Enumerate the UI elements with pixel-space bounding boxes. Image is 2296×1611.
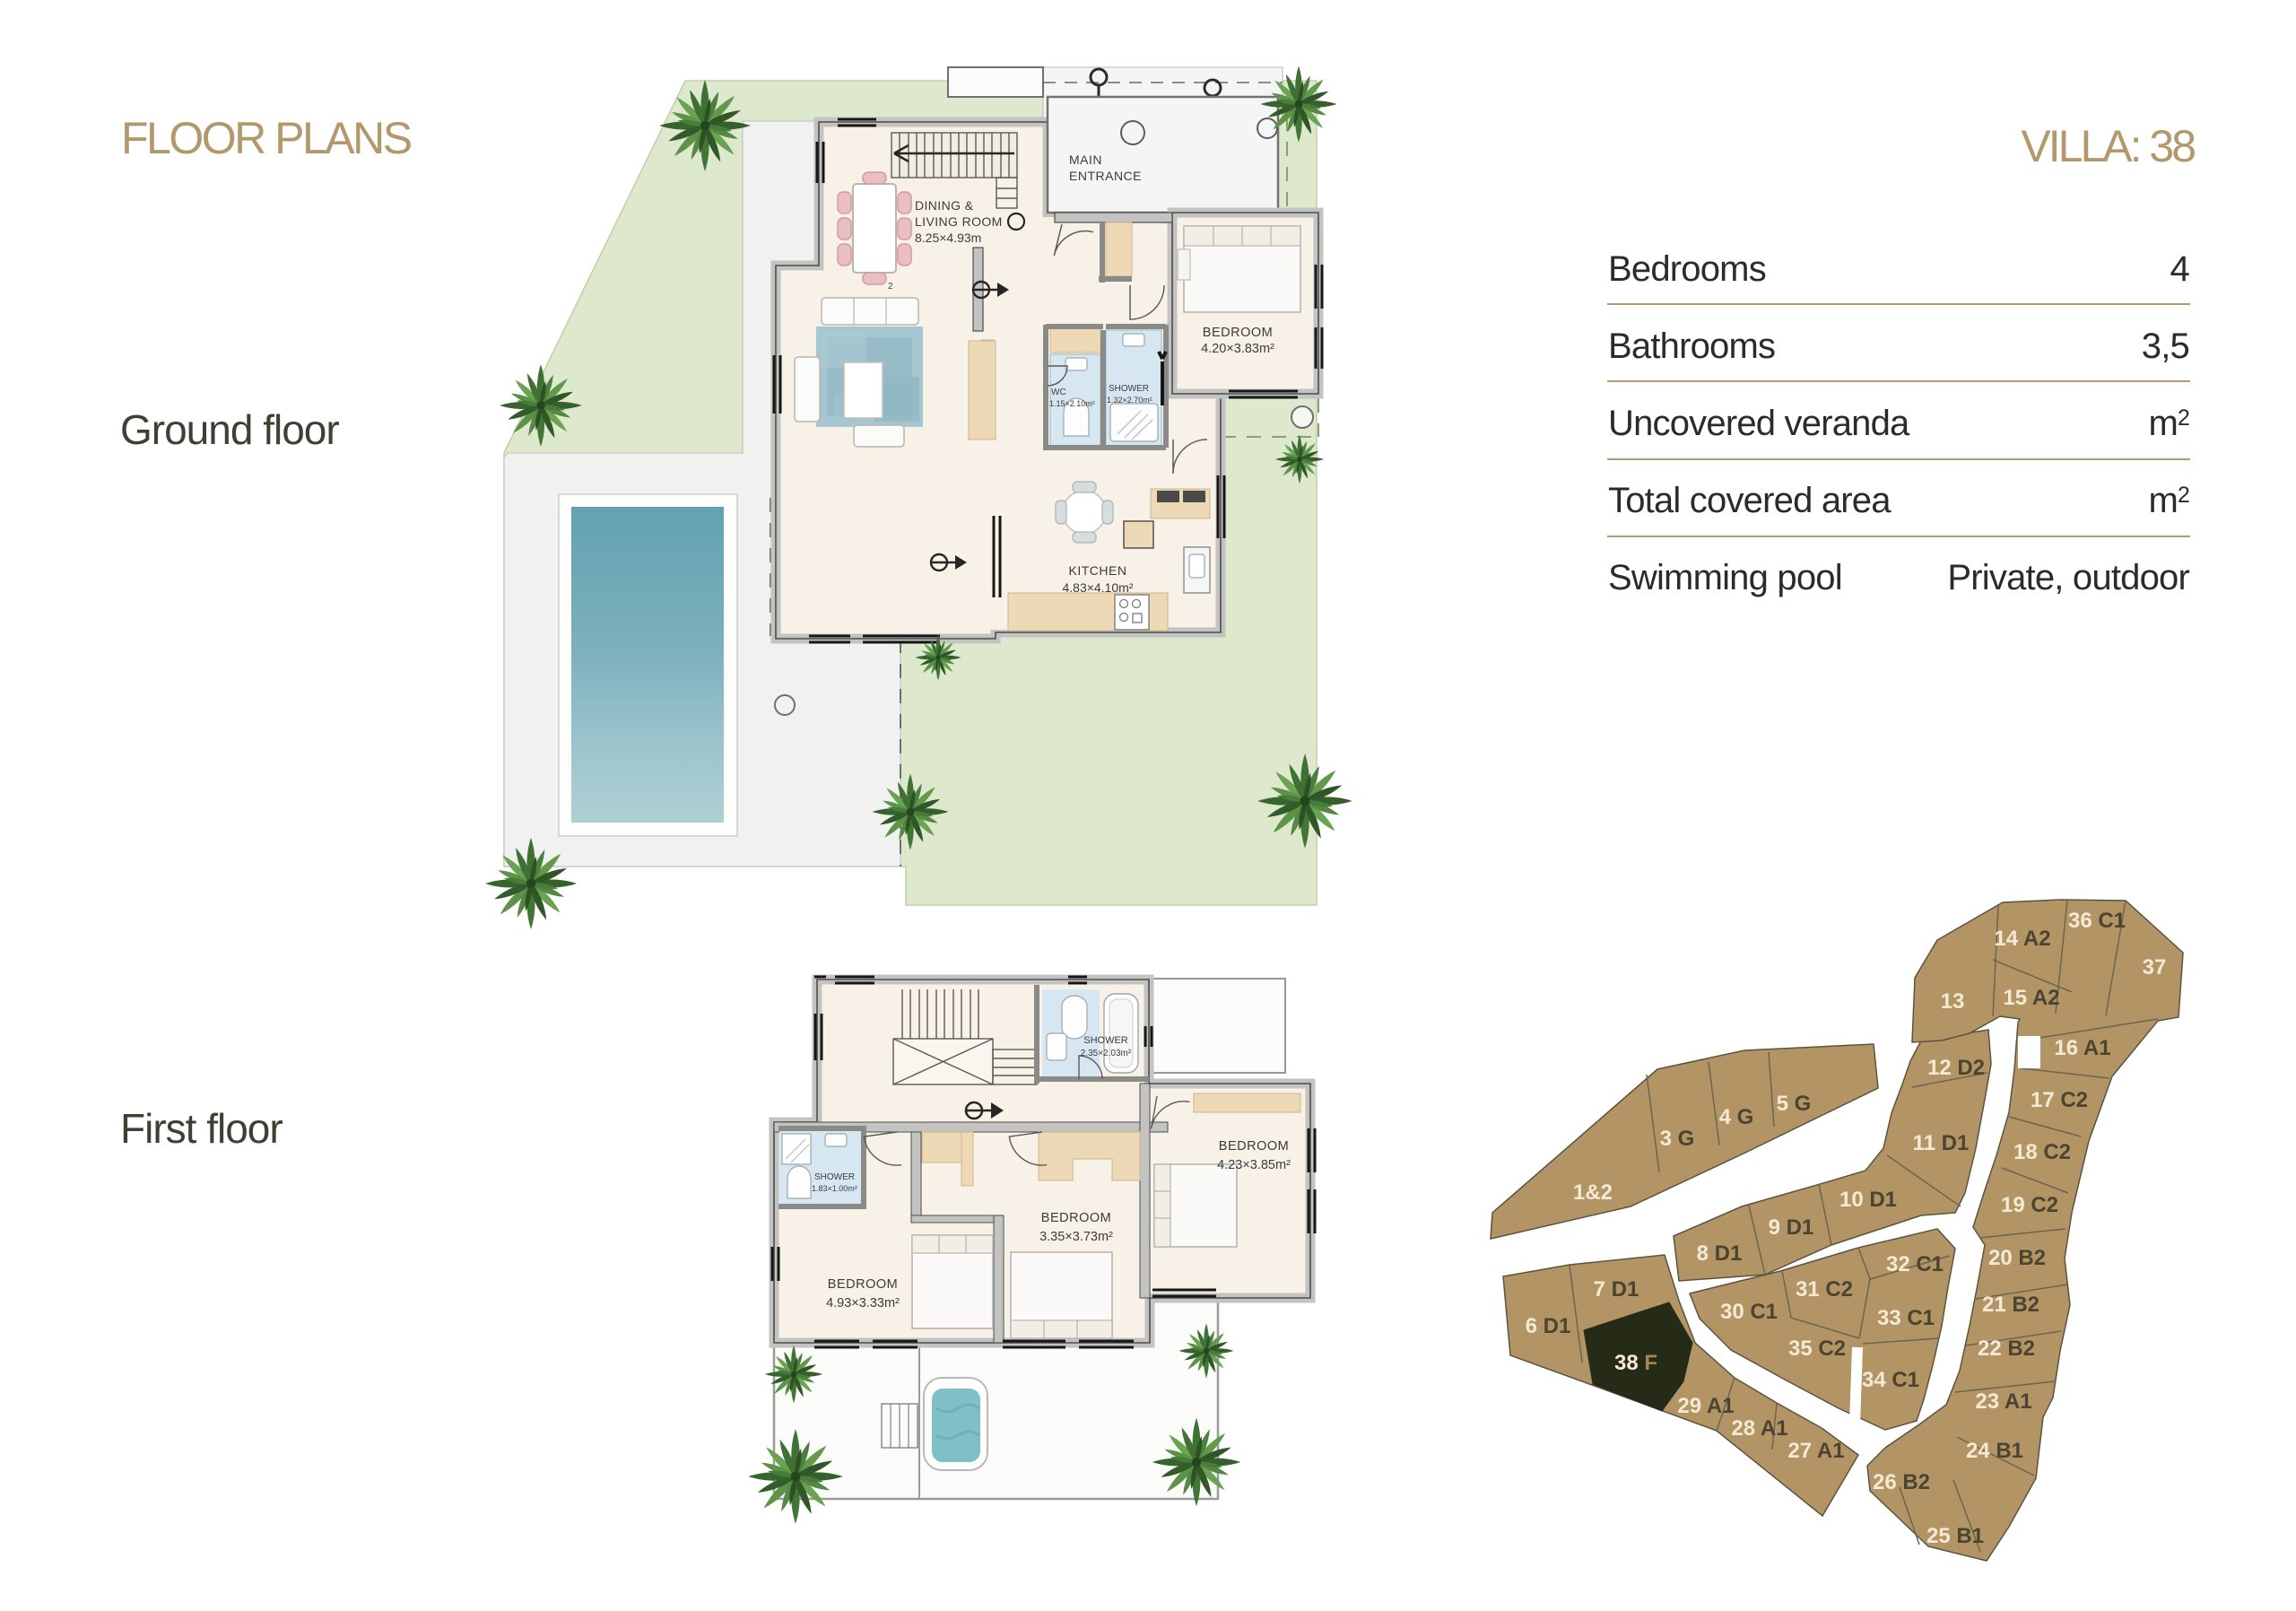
svg-text:6 D1: 6 D1: [1526, 1314, 1571, 1338]
svg-text:9 D1: 9 D1: [1769, 1215, 1814, 1240]
svg-text:27 A1: 27 A1: [1787, 1439, 1844, 1463]
svg-text:1.15×2.10m²: 1.15×2.10m²: [1049, 399, 1095, 408]
svg-text:1.32×2.70m²: 1.32×2.70m²: [1107, 396, 1152, 405]
svg-text:2: 2: [888, 282, 893, 292]
svg-text:SHOWER: SHOWER: [1109, 384, 1149, 394]
svg-text:8.25×4.93m: 8.25×4.93m: [915, 231, 981, 245]
svg-text:BEDROOM: BEDROOM: [1041, 1211, 1111, 1225]
svg-text:34 C1: 34 C1: [1862, 1368, 1919, 1392]
svg-text:SHOWER: SHOWER: [1083, 1035, 1128, 1046]
svg-text:4.20×3.83m²: 4.20×3.83m²: [1201, 342, 1274, 356]
svg-text:10 D1: 10 D1: [1839, 1188, 1897, 1212]
svg-text:BEDROOM: BEDROOM: [1203, 326, 1273, 340]
svg-text:38 F: 38 F: [1614, 1351, 1657, 1375]
svg-text:1.83×1.00m²: 1.83×1.00m²: [812, 1184, 857, 1193]
svg-text:35 C2: 35 C2: [1788, 1337, 1846, 1361]
svg-text:5 G: 5 G: [1777, 1092, 1812, 1116]
svg-text:37: 37: [2143, 955, 2167, 980]
svg-text:4.83×4.10m²: 4.83×4.10m²: [1063, 580, 1134, 595]
svg-text:19 C2: 19 C2: [2001, 1193, 2058, 1217]
svg-text:WC: WC: [1051, 388, 1066, 397]
svg-text:28 A1: 28 A1: [1731, 1416, 1787, 1441]
svg-text:4.93×3.33m²: 4.93×3.33m²: [826, 1296, 900, 1311]
svg-text:22 B2: 22 B2: [1978, 1337, 2035, 1361]
svg-text:14 A2: 14 A2: [1994, 927, 2050, 951]
svg-text:20 B2: 20 B2: [1988, 1246, 2046, 1270]
svg-text:KITCHEN: KITCHEN: [1069, 563, 1127, 578]
svg-text:18 C2: 18 C2: [2013, 1140, 2071, 1164]
svg-text:BEDROOM: BEDROOM: [828, 1277, 898, 1292]
svg-text:24 B1: 24 B1: [1966, 1439, 2023, 1463]
svg-text:3.35×3.73m²: 3.35×3.73m²: [1039, 1230, 1113, 1244]
svg-text:23 A1: 23 A1: [1975, 1389, 2031, 1414]
svg-text:30 C1: 30 C1: [1720, 1300, 1778, 1324]
svg-text:26 B2: 26 B2: [1873, 1470, 1930, 1494]
svg-text:ENTRANCE: ENTRANCE: [1069, 169, 1142, 183]
svg-text:2.35×2.03m²: 2.35×2.03m²: [1081, 1049, 1132, 1058]
svg-text:32 C1: 32 C1: [1886, 1252, 1944, 1276]
svg-text:36 C1: 36 C1: [2068, 909, 2126, 933]
svg-text:4.23×3.85m²: 4.23×3.85m²: [1217, 1158, 1291, 1172]
svg-text:1&2: 1&2: [1573, 1180, 1613, 1205]
svg-text:29 A1: 29 A1: [1677, 1394, 1734, 1418]
svg-text:11 D1: 11 D1: [1913, 1131, 1970, 1155]
svg-text:LIVING ROOM: LIVING ROOM: [915, 214, 1003, 229]
svg-text:13: 13: [1941, 989, 1965, 1014]
svg-text:33 C1: 33 C1: [1877, 1306, 1935, 1330]
svg-text:16 A1: 16 A1: [2054, 1036, 2110, 1060]
svg-text:MAIN: MAIN: [1069, 152, 1102, 167]
svg-text:17 C2: 17 C2: [2031, 1088, 2088, 1112]
svg-text:15 A2: 15 A2: [2003, 986, 2059, 1010]
svg-text:31 C2: 31 C2: [1796, 1277, 1853, 1302]
svg-text:25 B1: 25 B1: [1926, 1524, 1984, 1548]
svg-text:SHOWER: SHOWER: [814, 1172, 855, 1182]
svg-text:4 G: 4 G: [1719, 1105, 1754, 1129]
svg-text:21 B2: 21 B2: [1982, 1293, 2039, 1317]
svg-text:BEDROOM: BEDROOM: [1219, 1139, 1289, 1154]
svg-text:8 D1: 8 D1: [1697, 1241, 1743, 1266]
svg-text:7 D1: 7 D1: [1594, 1277, 1639, 1302]
svg-text:12 D2: 12 D2: [1927, 1056, 1985, 1080]
svg-text:DINING &: DINING &: [915, 198, 974, 213]
svg-text:3 G: 3 G: [1660, 1127, 1695, 1151]
